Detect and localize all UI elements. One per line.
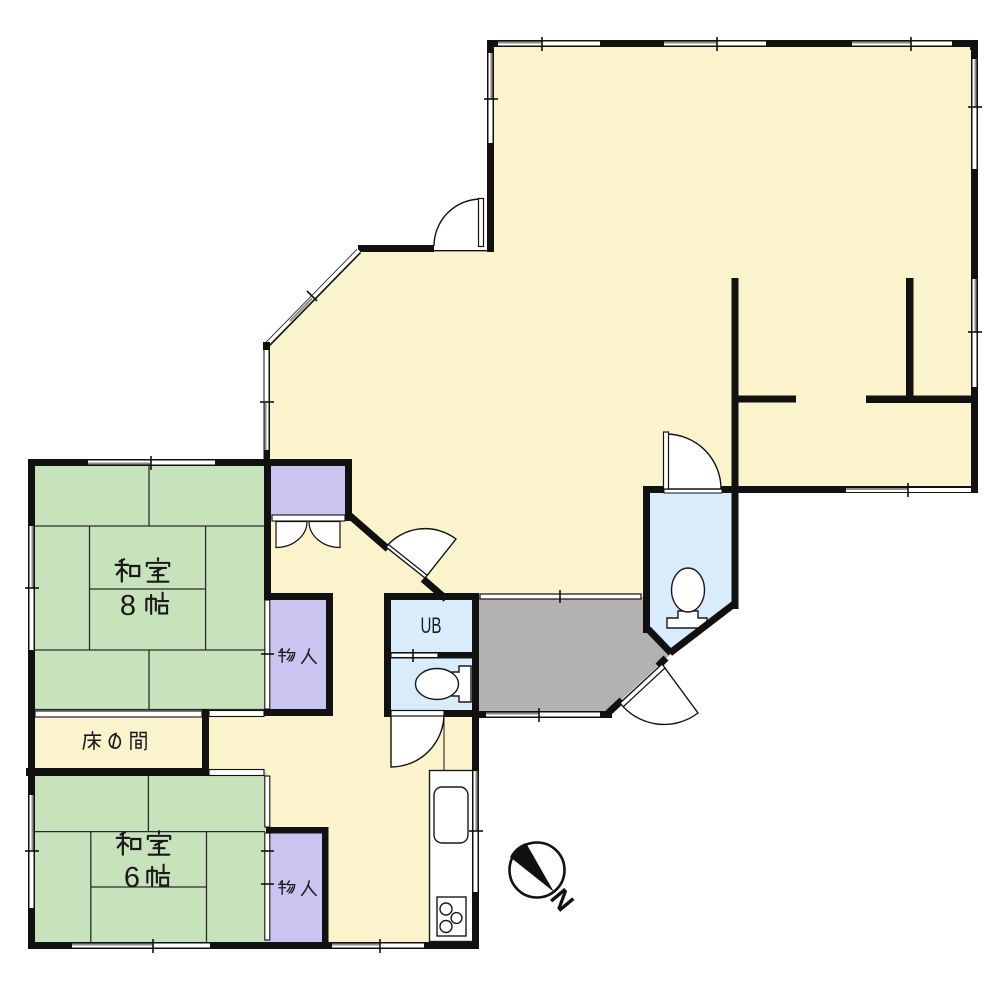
- svg-text:6: 6: [124, 862, 140, 894]
- svg-text:8: 8: [120, 590, 136, 622]
- svg-text:UB: UB: [421, 613, 442, 638]
